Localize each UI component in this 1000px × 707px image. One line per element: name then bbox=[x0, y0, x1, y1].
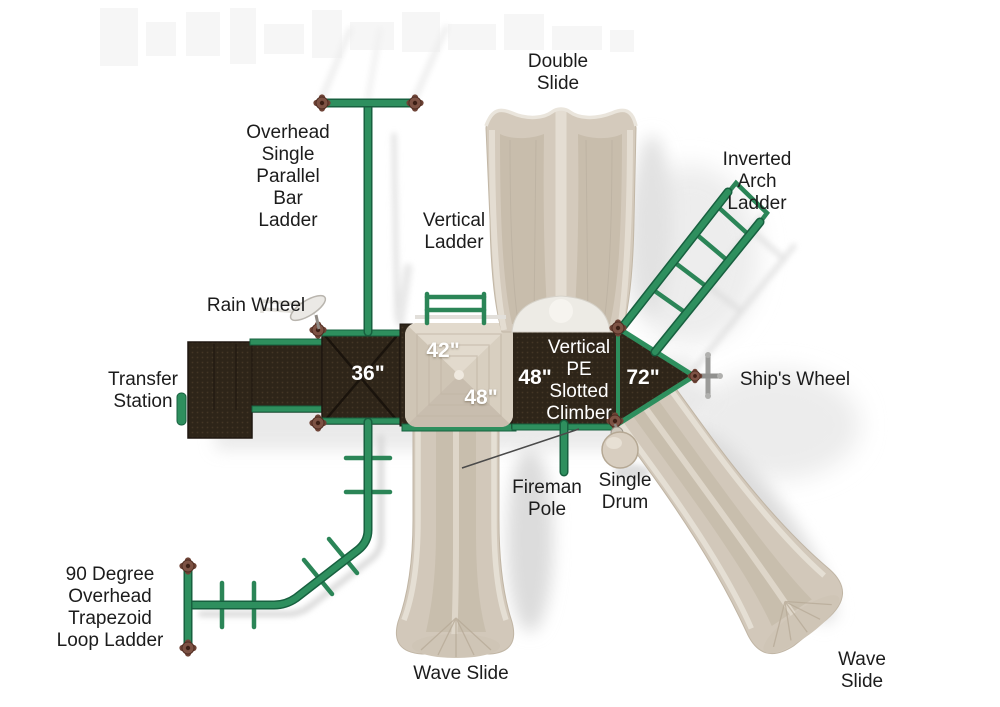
double-slide bbox=[486, 109, 636, 332]
label-rain-wheel: Rain Wheel bbox=[207, 295, 305, 317]
measurement-48-deck: 48" bbox=[518, 366, 551, 390]
measurement-72: 72" bbox=[626, 366, 659, 390]
label-fireman-pole: Fireman Pole bbox=[512, 477, 582, 521]
label-ships-wheel: Ship's Wheel bbox=[740, 369, 850, 391]
label-inverted-arch-ladder: Inverted Arch Ladder bbox=[723, 149, 792, 215]
measurement-42: 42" bbox=[426, 339, 459, 363]
measurement-36: 36" bbox=[351, 362, 384, 386]
label-single-drum: Single Drum bbox=[599, 470, 652, 514]
label-vertical-ladder: Vertical Ladder bbox=[423, 210, 485, 254]
label-wave-slide-bottom: Wave Slide bbox=[413, 663, 508, 685]
vertical-ladder bbox=[415, 294, 506, 323]
measurement-48-roof: 48" bbox=[464, 386, 497, 410]
label-double-slide: Double Slide bbox=[528, 51, 588, 95]
playground-diagram: Double Slide Overhead Single Parallel Ba… bbox=[0, 0, 1000, 707]
label-wave-slide-right: Wave Slide bbox=[838, 649, 886, 693]
label-vertical-pe-slotted-climber: Vertical PE Slotted Climber bbox=[546, 337, 611, 425]
label-transfer-station: Transfer Station bbox=[108, 369, 178, 413]
label-loop-ladder-90: 90 Degree Overhead Trapezoid Loop Ladder bbox=[57, 564, 164, 652]
wave-slide-bottom bbox=[396, 420, 513, 658]
label-overhead-single-parallel-bar-ladder: Overhead Single Parallel Bar Ladder bbox=[246, 122, 329, 232]
